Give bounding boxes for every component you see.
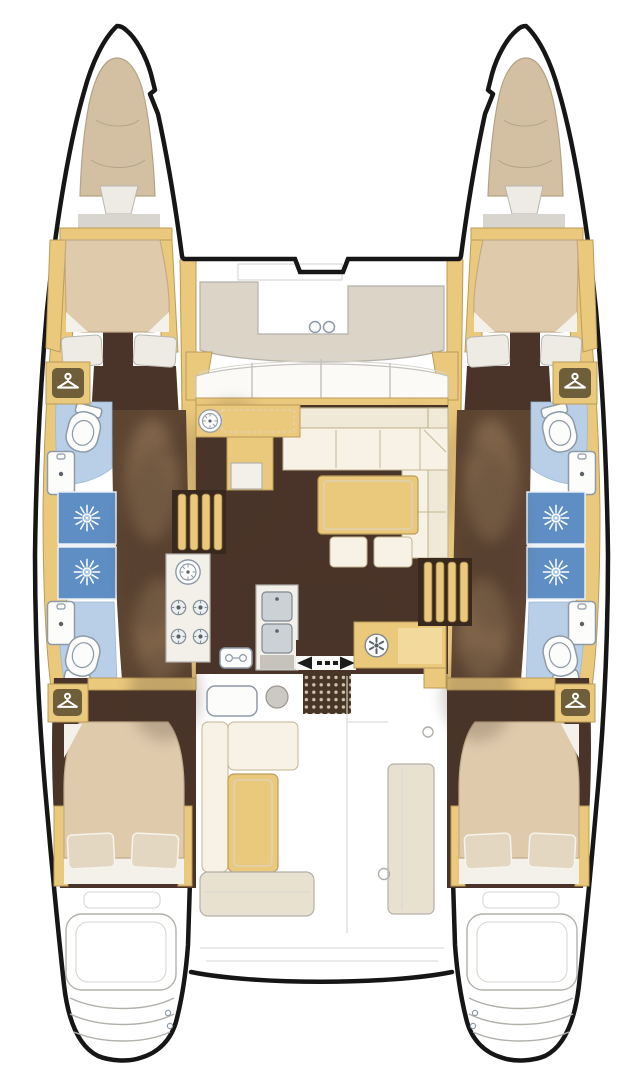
stair-landing [424,668,446,688]
cockpit-table [228,774,278,872]
aft-deck [200,948,444,961]
aft-berth-pillow-left [67,833,115,869]
forward-berth-headboard [60,228,172,240]
round-sink-icon [176,560,200,584]
burner-icon [171,600,185,614]
forward-double-berth [65,240,169,332]
sink-icon [48,452,75,495]
faucet-icon [220,648,252,668]
port-aft-wardrobe [48,684,88,722]
foredeck-sun-lounge [200,282,444,362]
deck-fitting [423,727,433,737]
companionway-stairs-port [172,490,226,554]
aft-berth-pillow-right [131,833,179,869]
cockpit-bench-forward [228,722,298,770]
ottoman-left [330,537,367,567]
cockpit [200,676,434,933]
galley-cooktop-unit [166,554,210,662]
round-sink-icon [199,410,222,433]
chart-seat [231,463,262,489]
aft-galley-counter [354,622,446,688]
burner-icon [193,600,207,614]
cockpit-aft-bench [200,872,314,916]
sink-island-base [260,655,294,669]
helm-module [388,764,434,914]
sink-bowl [262,624,292,653]
starboard-hull-mirrored [442,26,608,1060]
saloon-table [318,476,418,534]
sofa-seats-top [283,428,420,470]
coachroof-front-edge [184,259,459,272]
cockpit-locker [207,686,257,716]
hatch-icon [310,322,321,333]
transom-crossbeam [191,972,452,982]
burner-icon [193,629,207,643]
burner-icon [171,629,185,643]
sofa-corner-seat [420,428,448,470]
hatch-icon [324,322,335,333]
sofa-back-top [280,408,448,428]
port-shower-stalls [58,492,116,599]
sliding-door [296,640,356,670]
cockpit-table-base [266,686,288,708]
forward-berth-pillow-right [133,335,177,368]
bridgedeck [166,259,472,982]
floorplan-canvas: Top-view floor plan of a four-cabin sail… [0,0,643,1080]
port-forward-wardrobe [46,362,90,404]
doormat [303,672,351,714]
catamaran-floorplan: Top-view floor plan of a four-cabin sail… [0,0,643,1080]
forward-cabin-floor-gap [103,330,133,370]
sink-bowl [262,592,292,621]
forepeak-pillow [100,186,138,214]
sink-icon [48,602,75,645]
galley-sink-island [256,585,298,670]
ottoman-right [374,537,412,567]
sliding-door-panel [296,640,356,656]
companionway-stairs-starboard [418,558,472,626]
spoked-hob-icon [365,634,388,657]
cockpit-bench-side [202,722,228,872]
